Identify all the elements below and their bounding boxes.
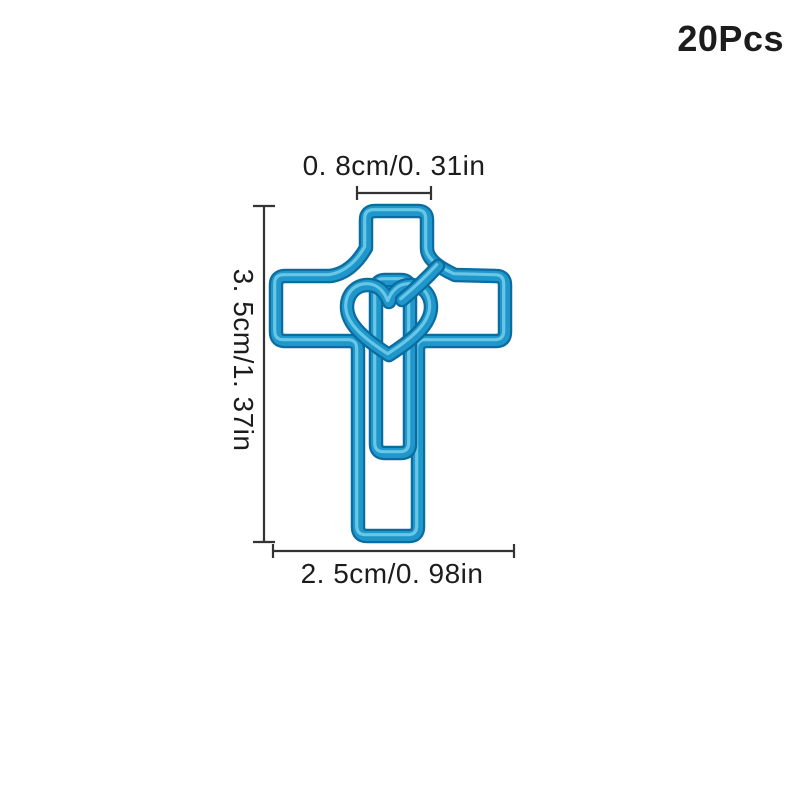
dimension-line-top <box>357 186 431 200</box>
product-image-canvas: 20Pcs 0. 8cm/0. 31in 3. 5cm/1. 37in 2. 5… <box>0 0 800 800</box>
outer-cross-wire <box>275 210 505 536</box>
cross-paperclip-graphic <box>0 0 800 800</box>
dimension-label-bottom-width: 2. 5cm/0. 98in <box>301 558 484 590</box>
dimension-label-side-height: 3. 5cm/1. 37in <box>227 269 259 452</box>
outer-cross-wire-body <box>276 211 505 536</box>
outer-cross-wire-highlight <box>275 210 504 535</box>
dimension-label-top-width: 0. 8cm/0. 31in <box>303 150 486 182</box>
dimension-line-bottom <box>273 544 514 558</box>
outer-cross-wire-edge <box>276 211 505 536</box>
quantity-badge: 20Pcs <box>677 18 784 60</box>
